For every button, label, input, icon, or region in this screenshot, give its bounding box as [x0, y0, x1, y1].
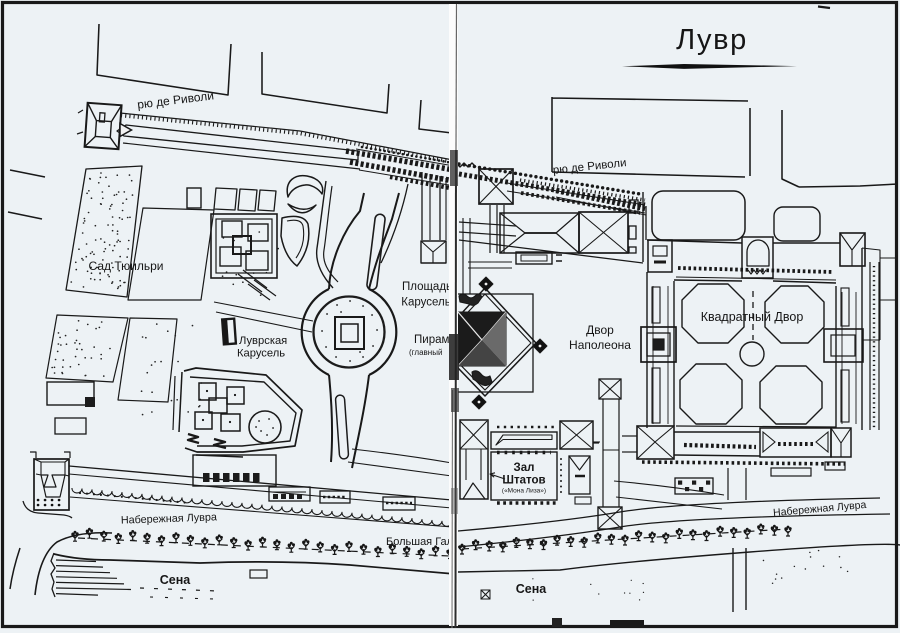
svg-text:Большая Гал: Большая Гал — [386, 536, 453, 548]
svg-text:Наполеона: Наполеона — [569, 338, 631, 352]
svg-text:Сад Тюильри: Сад Тюильри — [89, 259, 164, 273]
svg-text:Карусель: Карусель — [237, 348, 285, 360]
svg-text:Карусель: Карусель — [401, 297, 450, 309]
svg-text:Штатов: Штатов — [502, 475, 545, 487]
svg-text:Сена: Сена — [160, 573, 192, 587]
svg-text:Лувр: Лувр — [676, 24, 748, 56]
svg-text:(«Мона Лиза»): («Мона Лиза») — [502, 488, 546, 495]
svg-text:Сена: Сена — [516, 582, 548, 596]
svg-text:Пирам: Пирам — [414, 334, 449, 346]
svg-text:(главный: (главный — [409, 348, 442, 357]
svg-text:Зал: Зал — [514, 462, 535, 474]
svg-text:Луврская: Луврская — [239, 335, 287, 347]
svg-text:Площадь: Площадь — [402, 281, 452, 293]
svg-text:Квадратный Двор: Квадратный Двор — [701, 310, 804, 324]
svg-text:Двор: Двор — [586, 323, 614, 337]
